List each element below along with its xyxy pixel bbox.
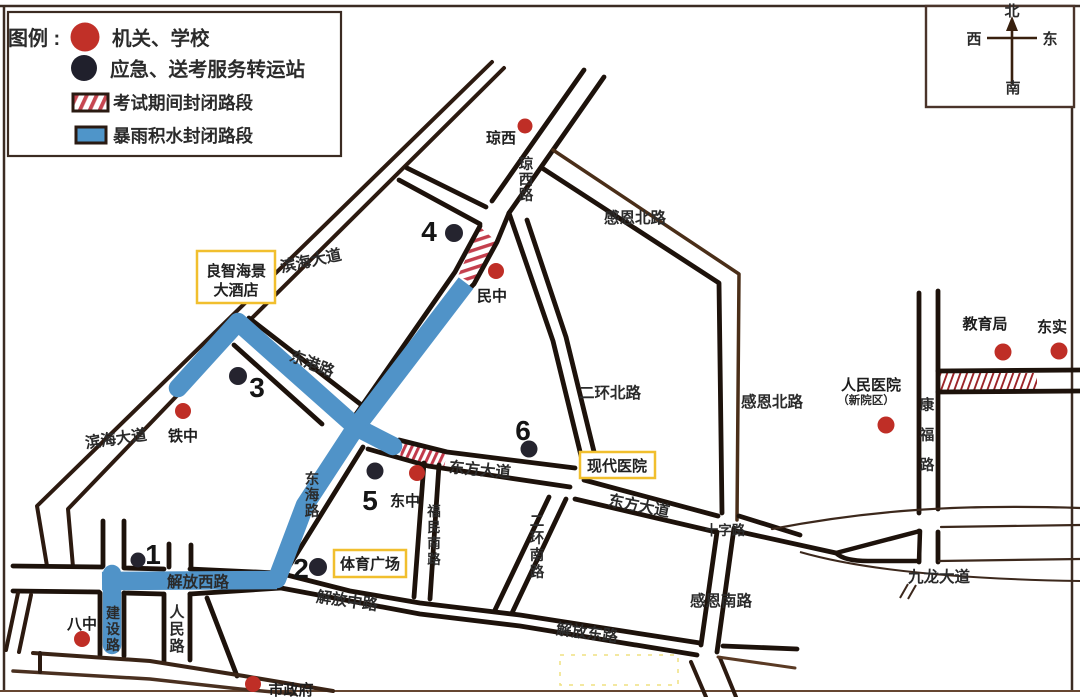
svg-text:良智海景: 良智海景 [206,262,266,280]
svg-text:建设路: 建设路 [106,605,121,653]
svg-text:东: 东 [1042,30,1057,48]
svg-text:西: 西 [966,31,981,48]
svg-text:康福路: 康福路 [919,396,935,474]
svg-text:东实: 东实 [1037,318,1067,336]
svg-text:4: 4 [421,216,437,247]
svg-text:3: 3 [249,372,265,403]
svg-text:感恩北路: 感恩北路 [741,392,804,411]
svg-text:现代医院: 现代医院 [587,457,647,475]
svg-text:九龙大道: 九龙大道 [907,567,971,586]
svg-text:图例 :: 图例 : [8,26,60,50]
svg-text:人民路: 人民路 [169,604,185,655]
svg-text:2: 2 [293,553,309,584]
svg-text:十字路: 十字路 [705,522,746,538]
svg-text:大酒店: 大酒店 [213,281,258,299]
svg-text:感恩北路: 感恩北路 [604,208,667,227]
svg-text:6: 6 [515,415,531,446]
svg-text:机关、学校: 机关、学校 [112,27,210,50]
svg-text:东海路: 东海路 [305,470,320,520]
svg-text:体育广场: 体育广场 [340,555,400,573]
svg-text:1: 1 [145,539,161,570]
svg-text:东中: 东中 [390,492,420,510]
svg-text:（新院区）: （新院区） [837,393,895,407]
svg-text:二环南路: 二环南路 [530,514,545,581]
svg-text:应急、送考服务转运站: 应急、送考服务转运站 [110,58,306,81]
svg-text:南: 南 [1005,79,1020,97]
svg-text:考试期间封闭路段: 考试期间封闭路段 [112,93,253,113]
svg-text:感恩南路: 感恩南路 [690,591,753,610]
svg-text:市政府: 市政府 [268,681,313,697]
svg-text:二环北路: 二环北路 [579,383,642,402]
svg-text:人民医院: 人民医院 [841,376,901,394]
svg-text:5: 5 [362,485,378,516]
svg-text:民中: 民中 [477,287,507,305]
svg-text:八中: 八中 [66,615,97,633]
svg-text:铁中: 铁中 [168,427,198,445]
svg-text:琼西路: 琼西路 [519,155,534,204]
svg-text:暴雨积水封闭路段: 暴雨积水封闭路段 [112,126,253,146]
svg-text:琼西: 琼西 [486,129,516,147]
svg-text:解放西路: 解放西路 [167,572,230,591]
svg-text:教育局: 教育局 [961,315,1007,333]
